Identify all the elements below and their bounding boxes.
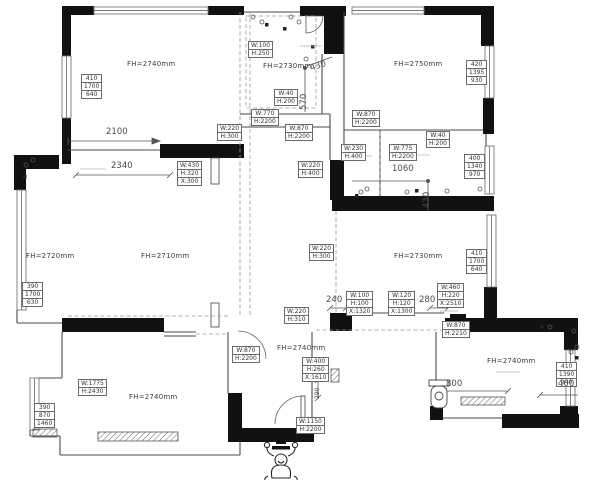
tag-box: 4101700640 (81, 75, 102, 99)
tag-box-cell: X:300 (177, 177, 202, 186)
tag-box: W:775H:2200 (389, 145, 417, 161)
tag-box: W:230H:400 (341, 145, 366, 161)
tag-box-cell: X:2510 (437, 299, 464, 308)
tag-box: W:400H:260X:1610 (302, 358, 329, 382)
dimension-label: 800 (446, 379, 462, 389)
tag-box: W:1775H:2430 (78, 380, 107, 396)
tag-box-cell: H:2200 (251, 117, 279, 126)
tag-box: W:220H:310 (284, 308, 309, 324)
dimension-label: 570 (299, 94, 309, 110)
tag-box-cell: H:2200 (352, 118, 380, 127)
tag-box-cell: H:310 (284, 315, 309, 324)
tag-box-cell: X:1300 (388, 307, 415, 316)
dimension-label: 2340 (111, 161, 133, 171)
tag-box-cell: 640 (466, 265, 487, 274)
dimension-label: 1060 (392, 164, 414, 174)
tag-box-cell: H:2210 (442, 329, 470, 338)
tag-box-cell: 1460 (34, 419, 55, 428)
tag-box-cell: H:250 (248, 49, 273, 58)
tag-box: 4101700640 (466, 250, 487, 274)
dimension-label: 280 (419, 295, 435, 305)
tag-box: W:460H:220X:2510 (437, 284, 464, 308)
annotation-layer: FH=2740mmFH=2730mmFH=2750mmFH=2720mmFH=2… (0, 0, 600, 480)
tag-box-cell: H:400 (341, 152, 366, 161)
tag-box-cell: X:1610 (302, 373, 329, 382)
tag-box: 3908701460 (34, 404, 55, 428)
room-height-label: FH=2740mm (127, 60, 175, 68)
tag-box-cell: H:2200 (389, 152, 417, 161)
floor-plan-canvas: FH=2740mmFH=2730mmFH=2750mmFH=2720mmFH=2… (0, 0, 600, 480)
dimension-label: 290 (314, 388, 321, 399)
tag-box-cell: X:1320 (346, 307, 373, 316)
tag-box-cell: 970 (464, 170, 485, 179)
tag-box: W:870H:2200 (352, 111, 380, 127)
tag-box: 4001340970 (464, 155, 485, 179)
tag-box-cell: 930 (466, 76, 487, 85)
tag-box: W:120H:120X:1300 (388, 292, 415, 316)
room-height-label: FH=2740mm (129, 393, 177, 401)
tag-box: W:870H:2200 (232, 347, 260, 363)
dimension-label: 240 (326, 295, 342, 305)
tag-box-cell: H:2200 (285, 132, 313, 141)
tag-box: W:100H:100X:1320 (346, 292, 373, 316)
room-height-label: FH=2740mm (277, 344, 325, 352)
tag-box-cell: H:200 (426, 139, 450, 148)
tag-box: W:870H:2210 (442, 322, 470, 338)
tag-box-cell: 630 (22, 298, 43, 307)
room-height-label: FH=2720mm (26, 252, 74, 260)
dimension-label: 430 (422, 192, 432, 208)
room-height-label: FH=2750mm (394, 60, 442, 68)
room-height-label: FH=2730mm (263, 62, 311, 70)
tag-box-cell: H:300 (217, 132, 242, 141)
tag-box-cell: H:200 (274, 97, 298, 106)
tag-box: 3901700630 (22, 283, 43, 307)
tag-box: W:220H:300 (217, 125, 242, 141)
tag-box-cell: H:2200 (296, 425, 325, 434)
tag-box: W:1150H:2200 (296, 418, 325, 434)
tag-box: W:770H:2200 (251, 110, 279, 126)
dimension-label: 400 (558, 379, 574, 389)
dimension-label: 430 (309, 59, 328, 74)
tag-box-cell: H:2430 (78, 387, 107, 396)
tag-box-cell: H:300 (309, 252, 334, 261)
tag-box: W:870H:2200 (285, 125, 313, 141)
tag-box: W:40H:200 (426, 132, 450, 148)
tag-box: W:430H:320X:300 (177, 162, 202, 186)
tag-box: 4201395930 (466, 61, 487, 85)
room-height-label: FH=2730mm (394, 252, 442, 260)
tag-box-cell: H:400 (298, 169, 323, 178)
room-height-label: FH=2710mm (141, 252, 189, 260)
tag-box-cell: 640 (81, 90, 102, 99)
room-height-label: FH=2740mm (487, 357, 535, 365)
tag-box-cell: H:2200 (232, 354, 260, 363)
tag-box: W:220H:300 (309, 245, 334, 261)
tag-box: W:100H:250 (248, 42, 273, 58)
dimension-label: 2100 (106, 127, 128, 137)
tag-box: W:220H:400 (298, 162, 323, 178)
tag-box: W:40H:200 (274, 90, 298, 106)
